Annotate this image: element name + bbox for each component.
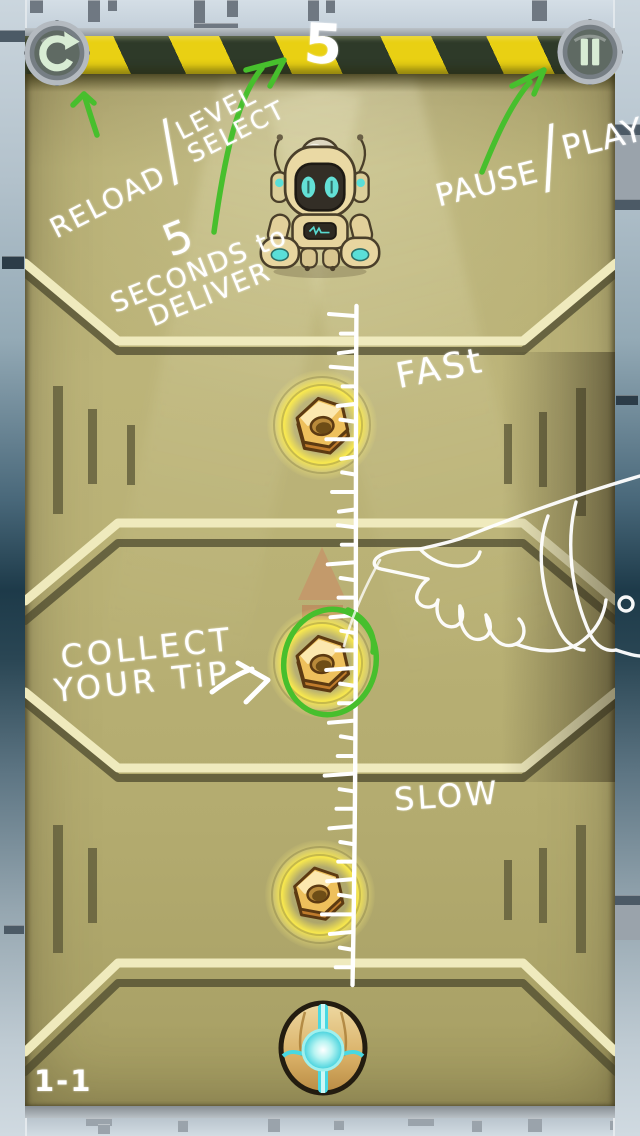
level-indicator: 1-1 [34, 1064, 92, 1098]
reload-icon [23, 19, 91, 87]
hex-nut-icon [287, 862, 349, 924]
pause-button[interactable] [556, 18, 624, 86]
hex-nut-top[interactable] [267, 370, 377, 480]
hex-nut-bottom[interactable] [265, 840, 375, 950]
hex-nut-middle[interactable] [267, 608, 377, 718]
hex-nut-icon [289, 630, 355, 696]
up-arrow-indicator [298, 547, 346, 600]
hex-nut-icon [289, 392, 355, 458]
game-screen: RELOAD / LEVEL SELECT PAUSE / PLAY 5 SEC… [0, 0, 640, 1136]
reload-button[interactable] [23, 19, 91, 87]
slow-label: SLOW [393, 776, 501, 816]
pause-note-word2: PLAY [558, 112, 640, 165]
countdown-timer: 5 [286, 10, 359, 80]
pause-icon [556, 18, 624, 86]
delivery-orb[interactable] [277, 1000, 369, 1096]
